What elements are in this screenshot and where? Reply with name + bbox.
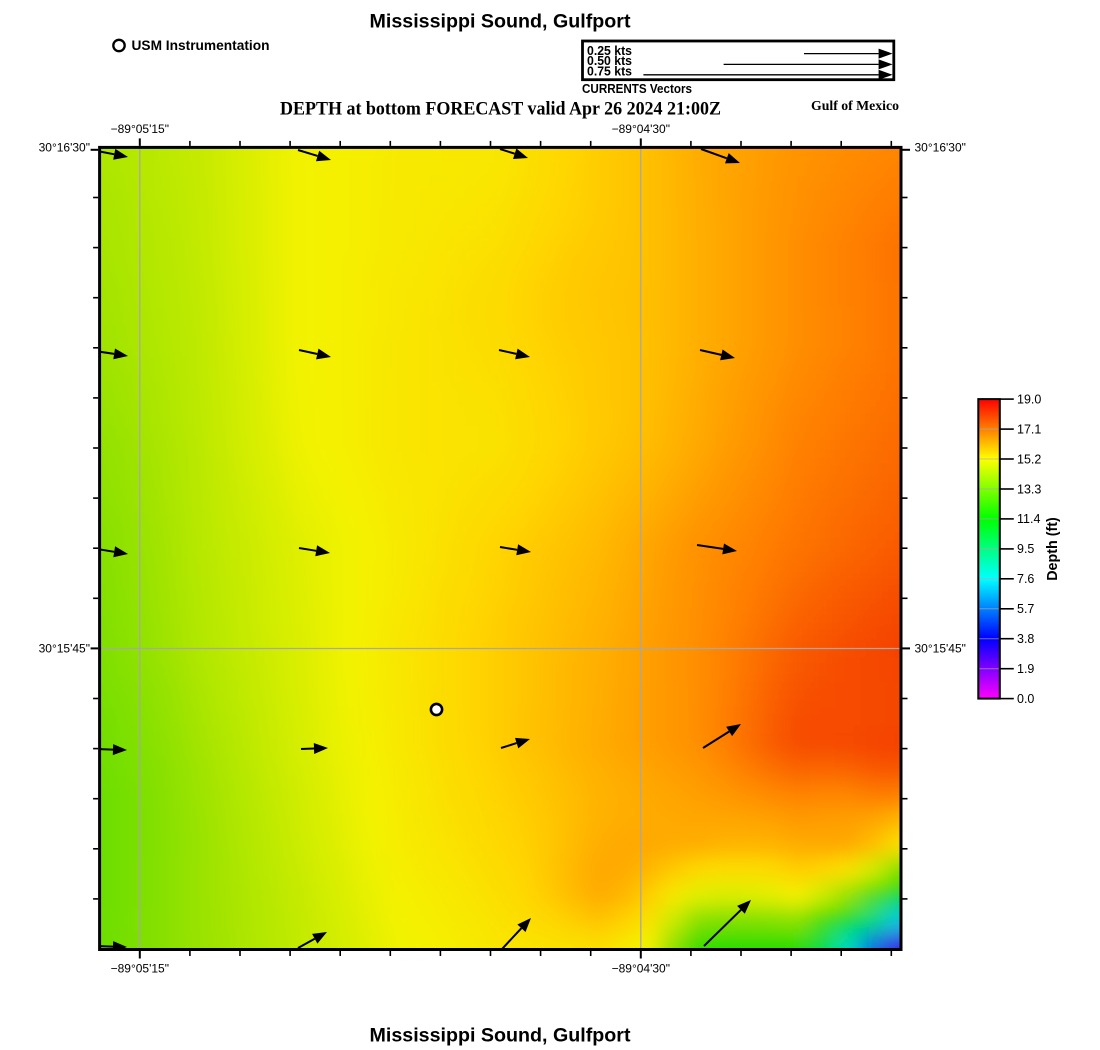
svg-text:3.8: 3.8 xyxy=(1017,632,1034,646)
svg-text:0.75 kts: 0.75 kts xyxy=(587,64,632,78)
svg-text:Mississippi Sound, Gulfport: Mississippi Sound, Gulfport xyxy=(370,11,632,33)
svg-text:1.9: 1.9 xyxy=(1017,662,1034,676)
svg-text:DEPTH at bottom FORECAST valid: DEPTH at bottom FORECAST valid Apr 26 20… xyxy=(280,99,721,120)
svg-text:Depth (ft): Depth (ft) xyxy=(1045,517,1061,581)
svg-text:30°15'45": 30°15'45" xyxy=(915,642,966,656)
svg-text:Gulf of Mexico: Gulf of Mexico xyxy=(811,99,899,114)
svg-text:Mississippi Sound, Gulfport: Mississippi Sound, Gulfport xyxy=(370,1025,632,1047)
svg-text:19.0: 19.0 xyxy=(1017,392,1041,406)
svg-text:13.3: 13.3 xyxy=(1017,482,1041,496)
svg-text:−89°04'30": −89°04'30" xyxy=(612,122,670,136)
svg-text:30°16'30": 30°16'30" xyxy=(39,141,90,155)
svg-text:15.2: 15.2 xyxy=(1017,452,1041,466)
svg-text:−89°05'15": −89°05'15" xyxy=(111,122,169,136)
svg-text:5.7: 5.7 xyxy=(1017,602,1034,616)
svg-text:CURRENTS Vectors: CURRENTS Vectors xyxy=(582,81,692,96)
svg-text:USM Instrumentation: USM Instrumentation xyxy=(132,37,270,53)
svg-text:9.5: 9.5 xyxy=(1017,542,1034,556)
svg-text:−89°05'15": −89°05'15" xyxy=(111,962,169,976)
svg-text:30°15'45": 30°15'45" xyxy=(39,642,90,656)
svg-text:−89°04'30": −89°04'30" xyxy=(612,962,670,976)
svg-text:0.0: 0.0 xyxy=(1017,692,1034,706)
svg-text:17.1: 17.1 xyxy=(1017,422,1041,436)
svg-text:30°16'30": 30°16'30" xyxy=(915,141,966,155)
svg-text:7.6: 7.6 xyxy=(1017,572,1034,586)
svg-text:11.4: 11.4 xyxy=(1017,512,1040,526)
